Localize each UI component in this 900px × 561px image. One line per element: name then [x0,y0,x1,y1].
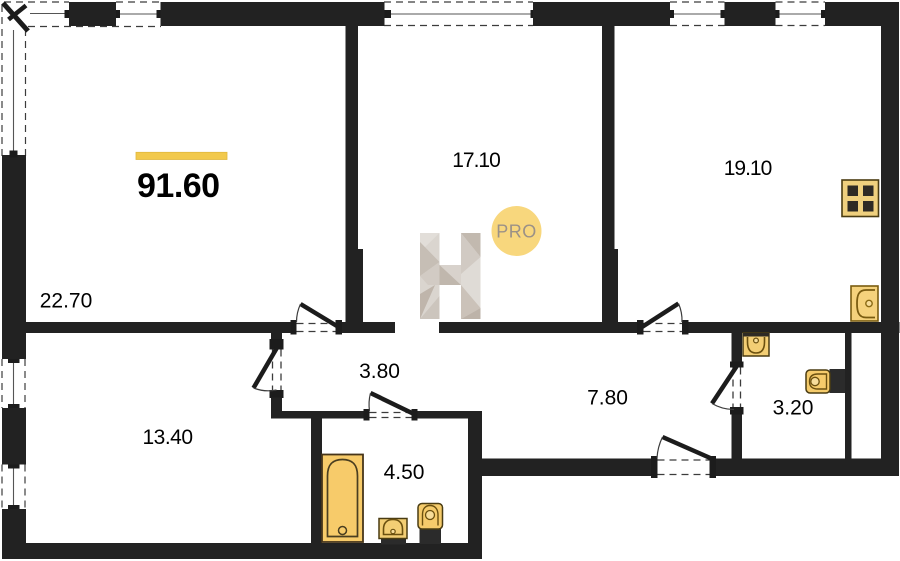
svg-text:13.40: 13.40 [142,426,192,449]
svg-text:17.10: 17.10 [452,149,500,172]
svg-text:4.50: 4.50 [384,461,425,484]
svg-text:7.80: 7.80 [587,387,628,410]
svg-text:PRO: PRO [496,222,537,242]
svg-text:3.20: 3.20 [773,397,814,420]
svg-text:19.10: 19.10 [724,157,772,180]
svg-text:91.60: 91.60 [137,167,220,205]
svg-text:3.80: 3.80 [359,360,400,383]
svg-text:22.70: 22.70 [40,290,93,313]
